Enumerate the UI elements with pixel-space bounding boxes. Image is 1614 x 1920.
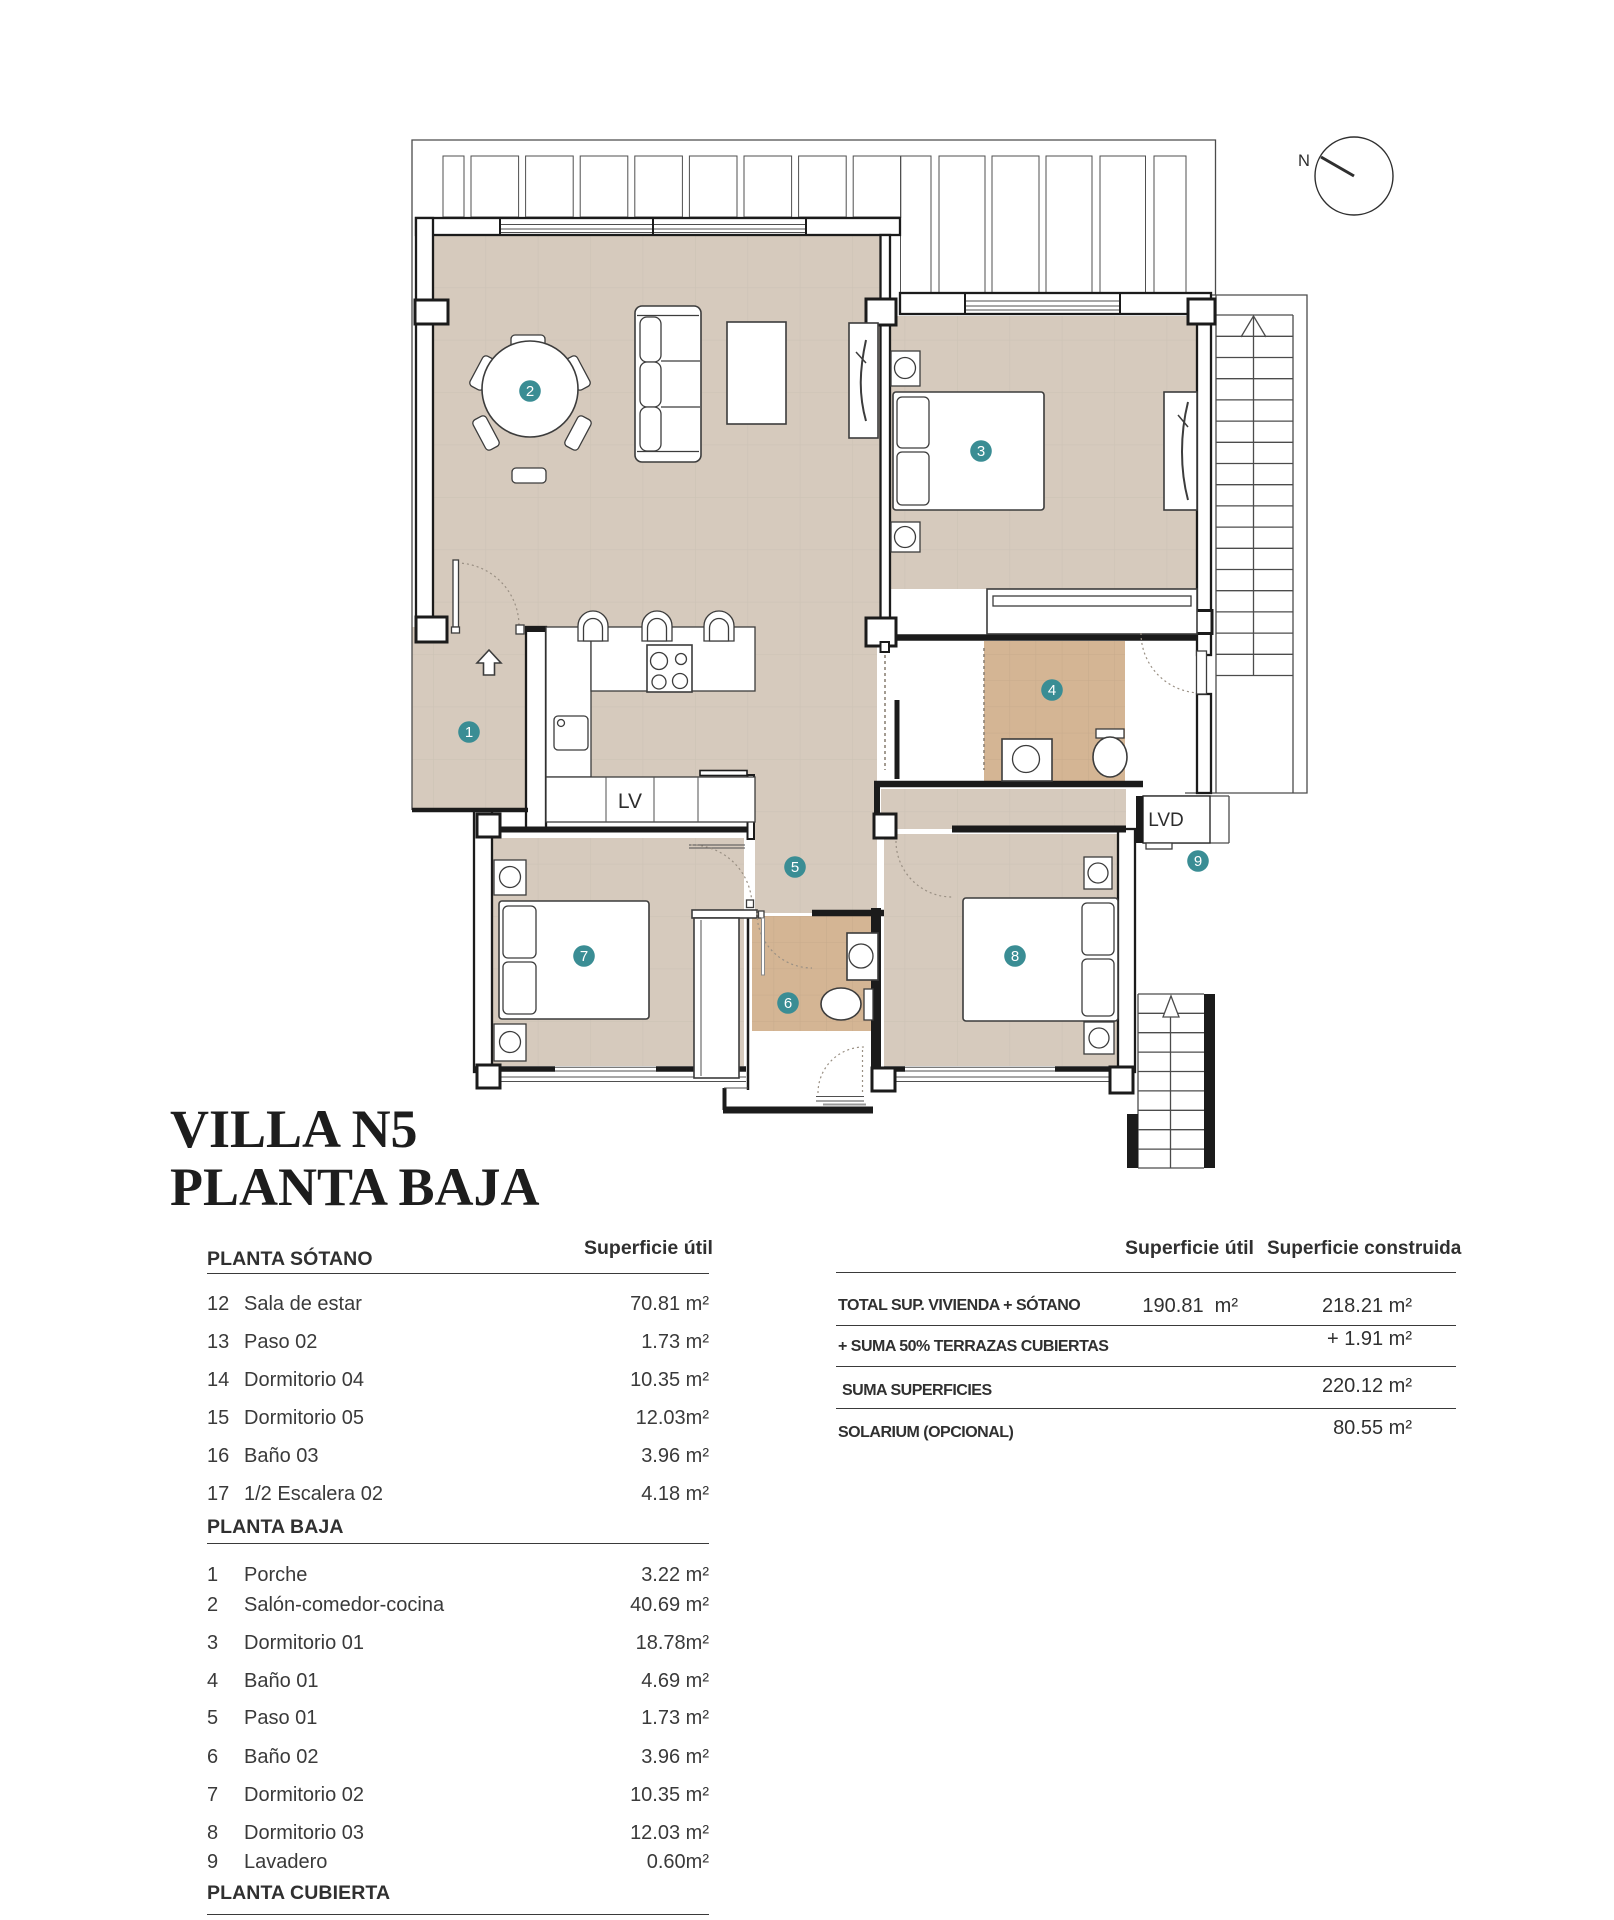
svg-text:7: 7 bbox=[580, 948, 588, 965]
svg-text:9: 9 bbox=[1194, 853, 1202, 870]
svg-text:4: 4 bbox=[1048, 682, 1056, 699]
svg-text:5: 5 bbox=[791, 859, 799, 876]
svg-text:LV: LV bbox=[618, 790, 642, 813]
svg-text:1: 1 bbox=[465, 724, 473, 741]
svg-text:8: 8 bbox=[1011, 948, 1019, 965]
svg-text:N: N bbox=[1298, 152, 1310, 170]
svg-text:3: 3 bbox=[977, 443, 985, 460]
svg-text:LVD: LVD bbox=[1148, 810, 1184, 831]
svg-text:2: 2 bbox=[526, 383, 534, 400]
svg-text:6: 6 bbox=[784, 995, 792, 1012]
